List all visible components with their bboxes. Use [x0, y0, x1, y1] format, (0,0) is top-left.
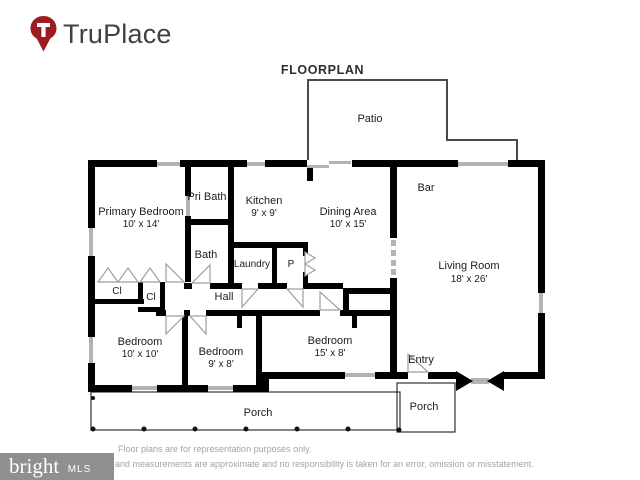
room-label-porch-entry: Porch	[410, 401, 439, 413]
room-label-living-room: Living Room	[438, 260, 499, 272]
room-dims-dining: 10' x 15'	[330, 219, 367, 230]
room-label-closet2: Cl	[146, 292, 155, 303]
watermark-brand: bright	[9, 456, 59, 477]
star-icon: *	[60, 462, 64, 471]
room-label-kitchen: Kitchen	[246, 195, 283, 207]
room-label-hall: Hall	[215, 291, 234, 303]
room-dims-living-room: 18' x 26'	[451, 274, 488, 285]
floorplan-page: TruPlace FLOORPLAN	[0, 0, 640, 480]
room-label-patio: Patio	[357, 113, 382, 125]
room-dims-bedroom2: 9' x 8'	[208, 359, 234, 370]
disclaimer-line-2: and measurements are approximate and no …	[115, 459, 534, 469]
room-label-closet1: Cl	[112, 286, 121, 297]
room-label-bath: Bath	[195, 249, 218, 261]
floorplan-drawing: Patio Bar Pri Bath Kitchen 9' x 9' Dinin…	[0, 0, 640, 480]
room-label-primary-bedroom: Primary Bedroom	[98, 206, 184, 218]
room-label-bedroom2: Bedroom	[199, 346, 244, 358]
watermark-suffix: MLS	[68, 464, 92, 475]
room-label-bedroom1: Bedroom	[118, 336, 163, 348]
room-label-porch-front: Porch	[244, 407, 273, 419]
patio-outline	[308, 80, 517, 160]
room-label-pantry: P	[288, 259, 295, 270]
room-dims-bedroom3: 15' x 8'	[314, 348, 345, 359]
room-label-pri-bath: Pri Bath	[187, 191, 226, 203]
room-dims-bedroom1: 10' x 10'	[122, 349, 159, 360]
disclaimer-line-1: Floor plans are for representation purpo…	[118, 444, 311, 454]
room-dims-kitchen: 9' x 9'	[251, 208, 277, 219]
fireplace-icon	[456, 371, 504, 391]
porch-outlines	[91, 383, 455, 432]
room-label-bedroom3: Bedroom	[308, 335, 353, 347]
room-label-dining: Dining Area	[320, 206, 378, 218]
room-dims-primary-bedroom: 10' x 14'	[123, 219, 160, 230]
bright-mls-watermark: bright * MLS	[0, 453, 114, 480]
room-label-laundry: Laundry	[234, 259, 270, 270]
room-label-bar: Bar	[417, 182, 434, 194]
room-label-entry: Entry	[408, 354, 434, 366]
